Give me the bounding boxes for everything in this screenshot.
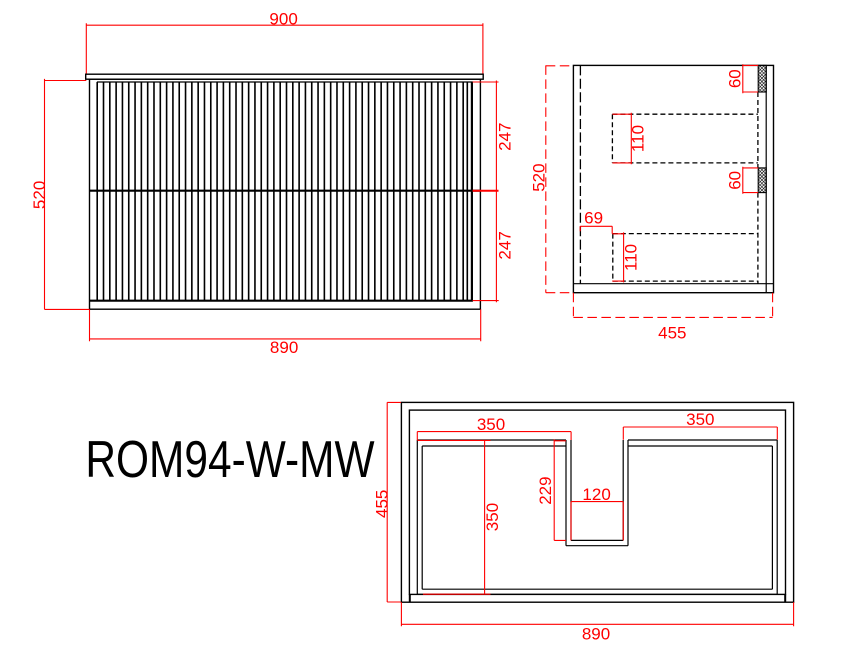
svg-text:350: 350 xyxy=(686,410,714,429)
svg-text:247: 247 xyxy=(496,231,515,259)
svg-text:520: 520 xyxy=(530,163,549,191)
svg-text:60: 60 xyxy=(726,171,745,190)
svg-text:890: 890 xyxy=(582,625,610,644)
svg-text:247: 247 xyxy=(496,123,515,151)
svg-text:890: 890 xyxy=(270,338,298,357)
svg-text:110: 110 xyxy=(629,125,648,152)
svg-text:229: 229 xyxy=(536,476,555,504)
svg-text:900: 900 xyxy=(269,10,297,29)
svg-text:ROM94-W-MW: ROM94-W-MW xyxy=(85,430,374,488)
svg-text:455: 455 xyxy=(372,490,391,518)
svg-text:60: 60 xyxy=(726,69,745,88)
svg-text:120: 120 xyxy=(582,485,610,504)
svg-text:520: 520 xyxy=(30,181,49,209)
svg-text:69: 69 xyxy=(584,208,603,227)
svg-text:110: 110 xyxy=(622,244,641,271)
svg-text:350: 350 xyxy=(483,503,502,531)
svg-text:455: 455 xyxy=(658,323,686,342)
svg-text:350: 350 xyxy=(477,415,505,434)
